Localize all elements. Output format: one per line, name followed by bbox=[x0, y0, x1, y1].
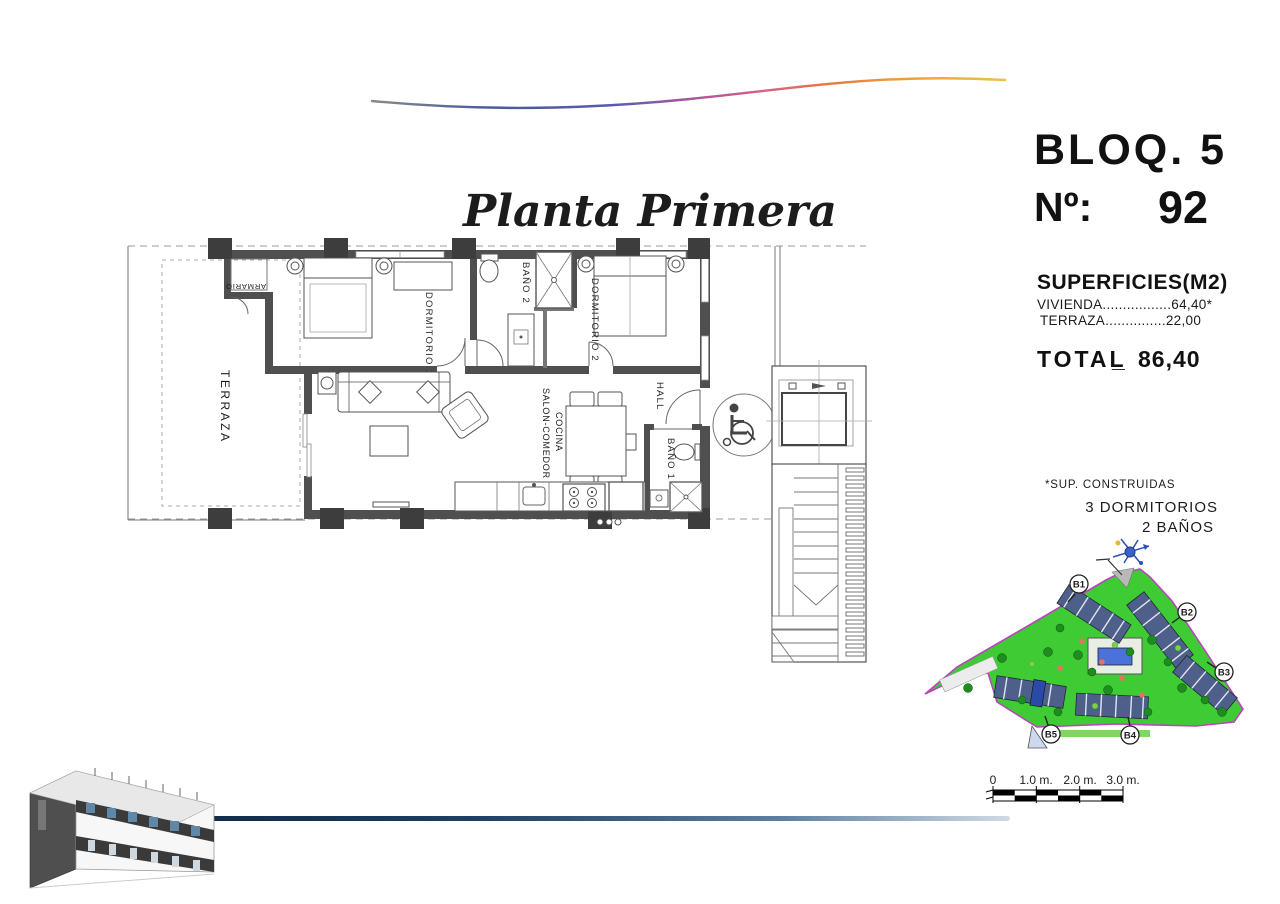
coffee-table-icon bbox=[370, 426, 408, 456]
room-label-dormitorio2: DORMITORIO 2 bbox=[589, 278, 600, 362]
terrace: TERRAZA bbox=[128, 246, 305, 520]
fridge-icon bbox=[609, 482, 643, 511]
room-label-bano2: BAÑO 2 bbox=[520, 262, 531, 304]
unit-number-label: Nº: bbox=[1034, 184, 1092, 230]
note-banos: 2 BAÑOS bbox=[1142, 519, 1214, 536]
block-label: BLOQ. 5 bbox=[1034, 126, 1227, 174]
armario-closet: ARMARIO bbox=[225, 259, 267, 291]
notes: *SUP. CONSTRUIDAS 3 DORMITORIOS 2 BAÑOS bbox=[1045, 479, 1218, 536]
plan-sheet: Planta Primera BLOQ. 5 Nº: 92 SUPERFICIE… bbox=[0, 0, 1280, 904]
note-dormitorios: 3 DORMITORIOS bbox=[1085, 499, 1218, 516]
room-label-bano1: BAÑO 1 bbox=[665, 438, 676, 480]
page-title: Planta Primera bbox=[461, 186, 837, 237]
dormitorio2: DORMITORIO 2 bbox=[578, 256, 684, 362]
tv-icon bbox=[373, 502, 409, 507]
site-building-b4 bbox=[1075, 693, 1148, 719]
surfaces-heading: SUPERFICIES(M2) bbox=[1037, 271, 1228, 294]
scale-label-3: 3.0 m. bbox=[1106, 773, 1139, 787]
unit-number-value: 92 bbox=[1158, 182, 1208, 233]
toilet-icon bbox=[674, 444, 694, 460]
room-label-salon: SALON-COMEDOR bbox=[541, 388, 551, 479]
toilet-icon bbox=[480, 260, 498, 282]
stairs bbox=[772, 464, 866, 662]
accessibility-wheelchair-icon bbox=[713, 394, 775, 456]
site-label-b4: B4 bbox=[1124, 731, 1137, 742]
site-plan-map: B1 B2 B3 B4 B5 bbox=[925, 559, 1243, 748]
site-label-b3: B3 bbox=[1218, 668, 1230, 679]
site-label-b5: B5 bbox=[1045, 730, 1058, 741]
floor-plan: TERRAZA bbox=[128, 238, 872, 662]
scale-label-2: 2.0 m. bbox=[1063, 773, 1096, 787]
room-label-terraza: TERRAZA bbox=[218, 370, 232, 444]
wave-decoration bbox=[372, 78, 1005, 108]
compass-icon bbox=[1113, 539, 1149, 565]
dining-table-icon bbox=[566, 406, 626, 476]
dresser-icon bbox=[394, 262, 452, 290]
site-label-b1: B1 bbox=[1073, 580, 1086, 591]
blue-line-decoration bbox=[183, 816, 1010, 821]
surface-row-terraza: TERRAZA...............22,00 bbox=[1040, 313, 1201, 328]
room-label-armario: ARMARIO bbox=[225, 282, 266, 291]
stove-icon bbox=[563, 484, 605, 511]
building-render bbox=[30, 768, 214, 888]
note-sup-construidas: *SUP. CONSTRUIDAS bbox=[1045, 479, 1175, 491]
sink-icon bbox=[650, 490, 668, 507]
scale-bar: 0 1.0 m. 2.0 m. 3.0 m. bbox=[986, 773, 1140, 803]
elevator bbox=[766, 246, 872, 470]
vanity-icon bbox=[508, 314, 534, 366]
info-panel: BLOQ. 5 Nº: 92 SUPERFICIES(M2) VIVIENDA.… bbox=[1034, 126, 1228, 372]
total-separator: _ bbox=[1111, 346, 1125, 372]
site-label-b2: B2 bbox=[1181, 608, 1193, 619]
plan-drawing: Planta Primera BLOQ. 5 Nº: 92 SUPERFICIE… bbox=[0, 0, 1280, 904]
surface-row-vivienda: VIVIENDA.................64,40* bbox=[1037, 297, 1213, 312]
scale-label-1: 1.0 m. bbox=[1019, 773, 1052, 787]
room-label-cocina: COCINA bbox=[554, 412, 564, 452]
bed-icon bbox=[304, 258, 372, 338]
room-label-dormitorio1: DORMITORIO 1 bbox=[423, 292, 434, 376]
dormitorio1: DORMITORIO 1 bbox=[287, 258, 452, 376]
hall-bano1: HALL BAÑO 1 bbox=[650, 382, 702, 512]
total-value: 86,40 bbox=[1138, 346, 1201, 372]
room-label-hall: HALL bbox=[654, 382, 665, 411]
scale-label-0: 0 bbox=[990, 773, 997, 787]
